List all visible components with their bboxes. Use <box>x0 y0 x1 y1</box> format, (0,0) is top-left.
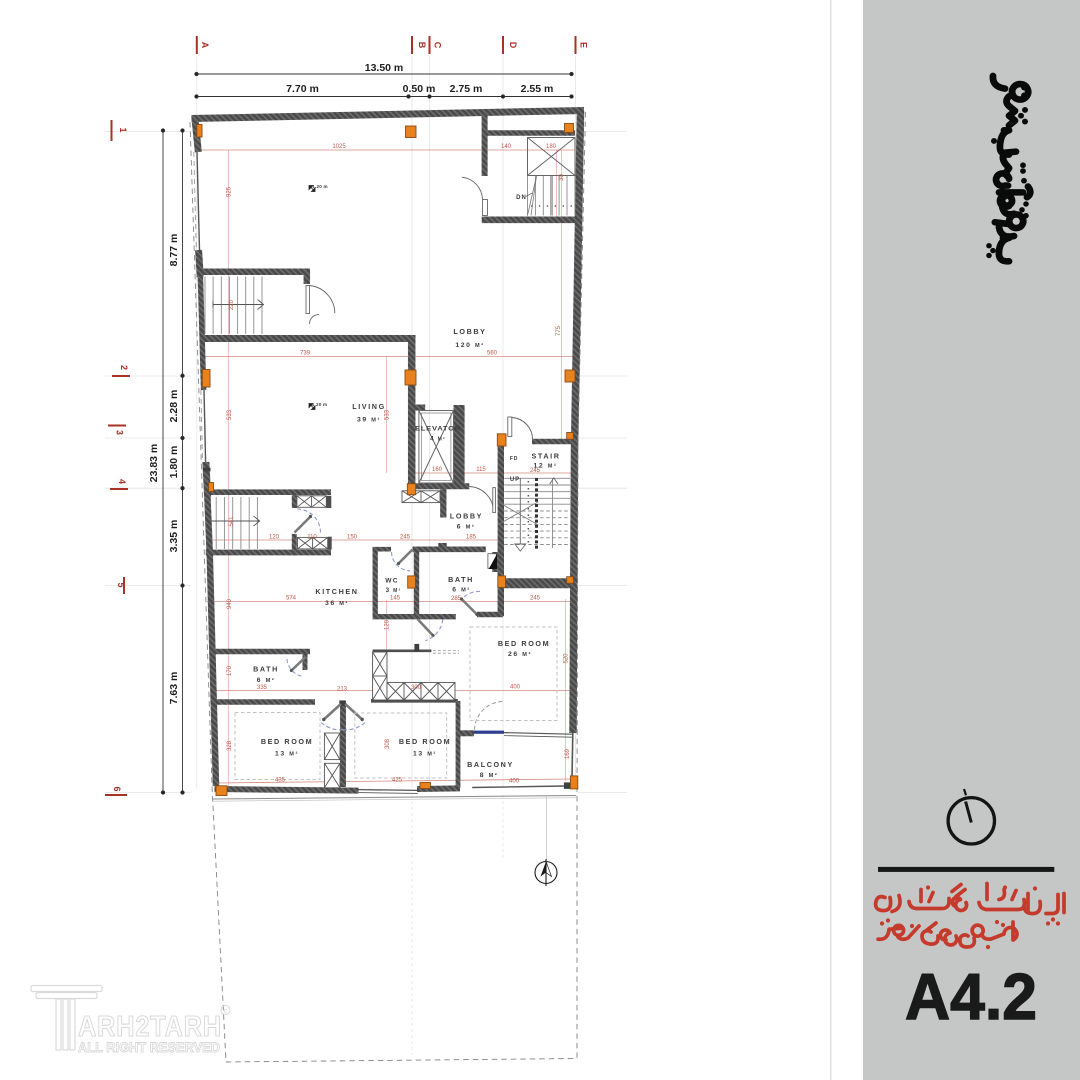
svg-text:3.35 m: 3.35 m <box>168 520 180 553</box>
svg-text:4: 4 <box>117 479 127 484</box>
svg-text:30: 30 <box>559 174 565 181</box>
svg-text:WC: WC <box>385 578 398 585</box>
svg-text:775: 775 <box>556 325 562 336</box>
svg-text:520: 520 <box>564 653 570 664</box>
svg-text:2.75 m: 2.75 m <box>450 83 483 95</box>
svg-text:180: 180 <box>546 144 557 150</box>
svg-text:533: 533 <box>227 409 233 420</box>
svg-text:220: 220 <box>229 299 235 310</box>
svg-text:3: 3 <box>115 430 125 435</box>
svg-text:150: 150 <box>347 534 358 540</box>
svg-text:ARH2TARH: ARH2TARH <box>78 1011 222 1043</box>
svg-text:245: 245 <box>400 534 411 540</box>
svg-text:ALL RIGHT RESERVED: ALL RIGHT RESERVED <box>78 1040 220 1055</box>
svg-text:STAIR: STAIR <box>531 452 560 461</box>
svg-text:0.50 m: 0.50 m <box>403 83 436 95</box>
svg-text:560: 560 <box>487 350 498 356</box>
svg-text:574: 574 <box>286 595 297 601</box>
svg-text:B: B <box>417 42 427 49</box>
svg-text:308: 308 <box>385 738 391 749</box>
svg-text:120 M²: 120 M² <box>455 342 484 349</box>
svg-text:160: 160 <box>432 467 443 473</box>
svg-text:120: 120 <box>269 534 280 540</box>
svg-text:425: 425 <box>392 777 403 783</box>
svg-text:26 M²: 26 M² <box>508 651 532 658</box>
svg-text:6 M²: 6 M² <box>452 587 471 594</box>
svg-text:3 M²: 3 M² <box>386 587 402 594</box>
svg-text:8.77 m: 8.77 m <box>168 234 180 267</box>
svg-text:C: C <box>433 42 443 49</box>
svg-text:328: 328 <box>227 740 233 751</box>
svg-text:BED ROOM: BED ROOM <box>261 737 313 746</box>
svg-text:7.63 m: 7.63 m <box>168 672 180 705</box>
svg-text:13.50 m: 13.50 m <box>365 62 404 74</box>
svg-text:E: E <box>579 42 589 48</box>
svg-text:D: D <box>508 42 518 49</box>
svg-text:245: 245 <box>530 468 541 474</box>
svg-text:1.20 m: 1.20 m <box>312 184 328 189</box>
svg-text:8 M²: 8 M² <box>480 772 499 779</box>
svg-text:115: 115 <box>476 467 486 473</box>
svg-text:185: 185 <box>466 534 477 540</box>
svg-text:2.28 m: 2.28 m <box>168 390 180 423</box>
svg-text:1.80 m: 1.80 m <box>168 446 180 479</box>
svg-text:285: 285 <box>451 596 462 602</box>
svg-text:A4.2: A4.2 <box>905 960 1037 1033</box>
svg-text:335: 335 <box>257 685 268 691</box>
svg-text:2.55 m: 2.55 m <box>521 83 554 95</box>
svg-text:6 M²: 6 M² <box>457 524 476 531</box>
svg-text:140: 140 <box>501 144 512 150</box>
svg-text:7.70 m: 7.70 m <box>286 83 319 95</box>
svg-text:940: 940 <box>227 598 233 609</box>
svg-text:BED ROOM: BED ROOM <box>399 737 451 746</box>
svg-text:145: 145 <box>390 595 401 601</box>
svg-text:1.20 m: 1.20 m <box>312 402 328 407</box>
svg-text:925: 925 <box>227 186 233 197</box>
svg-text:BATH: BATH <box>448 575 474 584</box>
svg-text:BALCONY: BALCONY <box>467 760 514 769</box>
svg-text:KITCHEN: KITCHEN <box>315 587 358 596</box>
svg-text:36 M²: 36 M² <box>325 600 349 607</box>
svg-text:245: 245 <box>530 595 541 601</box>
svg-text:533: 533 <box>385 409 391 420</box>
svg-text:LOBBY: LOBBY <box>453 327 486 336</box>
svg-text:BATH: BATH <box>253 665 279 674</box>
svg-text:169: 169 <box>565 748 571 759</box>
svg-text:170: 170 <box>227 665 233 676</box>
svg-text:110: 110 <box>307 534 317 540</box>
svg-text:213: 213 <box>337 686 348 692</box>
svg-text:400: 400 <box>510 684 521 690</box>
svg-text:435: 435 <box>275 777 286 783</box>
svg-text:39 M²: 39 M² <box>357 417 381 424</box>
svg-text:5: 5 <box>116 582 126 587</box>
svg-text:BED ROOM: BED ROOM <box>498 639 550 648</box>
svg-text:13 M²: 13 M² <box>413 751 437 758</box>
svg-text:A: A <box>200 42 210 49</box>
svg-text:UP: UP <box>510 477 520 483</box>
svg-text:1025: 1025 <box>332 144 346 150</box>
svg-text:23.83 m: 23.83 m <box>148 444 160 483</box>
svg-text:LIVING: LIVING <box>352 402 386 411</box>
svg-text:13 M²: 13 M² <box>275 751 299 758</box>
svg-text:400: 400 <box>509 778 520 784</box>
svg-text:FD: FD <box>510 456 518 462</box>
svg-text:1: 1 <box>118 127 128 132</box>
svg-text:LOBBY: LOBBY <box>450 512 483 521</box>
svg-text:541: 541 <box>229 516 235 527</box>
svg-text:300: 300 <box>411 685 422 691</box>
svg-text:4 M²: 4 M² <box>430 436 446 443</box>
svg-text:739: 739 <box>300 350 311 356</box>
svg-text:DN: DN <box>516 195 527 201</box>
svg-text:c: c <box>224 1008 228 1015</box>
svg-text:6 M²: 6 M² <box>257 677 276 684</box>
svg-text:120: 120 <box>385 619 391 630</box>
svg-text:ELEVATOR: ELEVATOR <box>415 426 461 433</box>
svg-text:6: 6 <box>112 786 122 791</box>
svg-text:2: 2 <box>119 365 129 370</box>
